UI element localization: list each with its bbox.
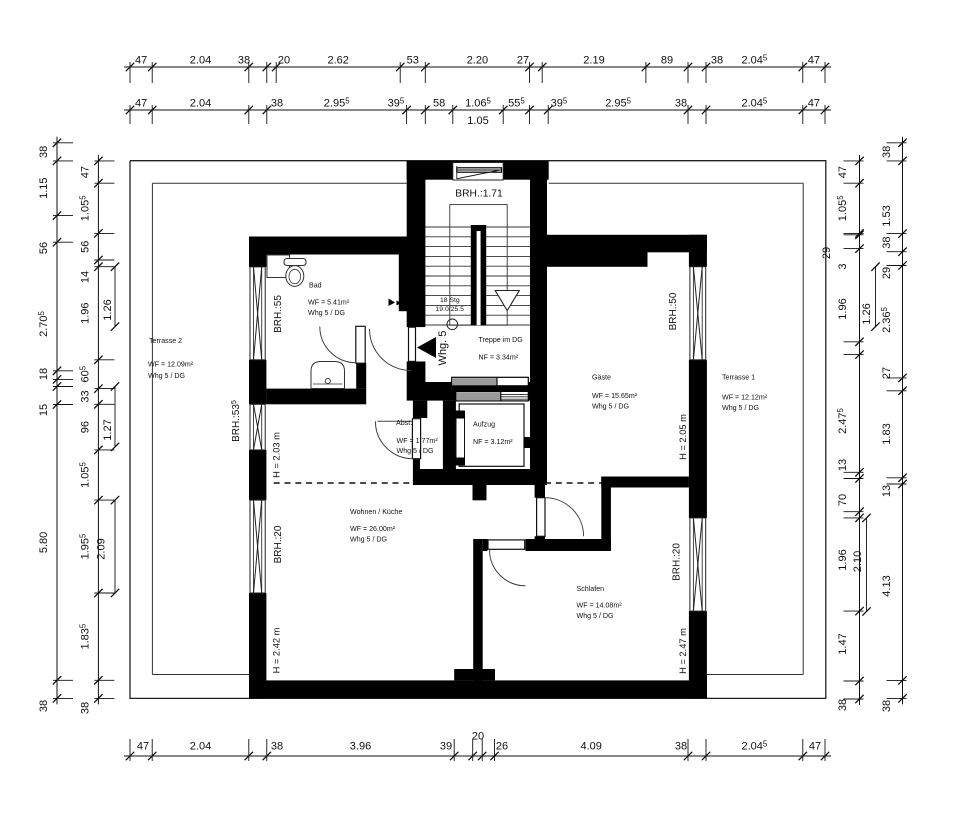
svg-text:38: 38 [711,55,723,67]
svg-text:2.62: 2.62 [327,55,348,67]
svg-text:47: 47 [809,741,821,753]
svg-text:14: 14 [80,271,92,283]
svg-text:BRH.:20: BRH.:20 [273,525,284,563]
svg-text:1.47: 1.47 [837,633,849,654]
svg-text:2.19: 2.19 [583,55,604,67]
svg-text:13: 13 [881,485,893,497]
svg-text:38: 38 [881,700,893,712]
svg-text:5.80: 5.80 [38,532,50,553]
svg-text:2.09: 2.09 [96,538,108,559]
svg-text:33: 33 [80,390,92,402]
svg-text:47: 47 [808,55,820,67]
svg-text:2.04: 2.04 [190,55,211,67]
svg-text:1.96: 1.96 [80,302,92,323]
svg-text:18 Stg: 18 Stg [440,297,460,304]
svg-text:47: 47 [135,55,147,67]
svg-text:38: 38 [675,741,687,753]
svg-text:2.20: 2.20 [467,55,488,67]
svg-text:Whg 5 / DG: Whg 5 / DG [592,403,629,411]
svg-text:38: 38 [675,98,687,110]
svg-text:38: 38 [80,702,92,714]
svg-text:47: 47 [837,166,849,178]
svg-text:1.26: 1.26 [861,303,873,324]
svg-text:38: 38 [271,741,283,753]
svg-text:Whg 5 / DG: Whg 5 / DG [350,536,387,544]
svg-text:2.04: 2.04 [190,98,211,110]
svg-text:58: 58 [433,98,445,110]
svg-text:38: 38 [38,146,50,158]
svg-text:1.53: 1.53 [881,205,893,226]
svg-text:89: 89 [661,55,673,67]
svg-text:H = 2.03 m: H = 2.03 m [272,432,282,478]
svg-text:Terrasse 2: Terrasse 2 [149,337,182,345]
svg-text:53: 53 [407,55,419,67]
svg-text:BRH.:20: BRH.:20 [672,543,683,581]
svg-text:1.05: 1.05 [467,115,488,127]
svg-text:18: 18 [38,368,50,380]
svg-text:29: 29 [881,267,893,279]
svg-text:NF = 3.12m²: NF = 3.12m² [473,438,513,446]
svg-text:3.96: 3.96 [350,741,371,753]
svg-text:56: 56 [38,242,50,254]
svg-text:2.04: 2.04 [190,741,211,753]
svg-text:47: 47 [135,98,147,110]
svg-text:47: 47 [80,166,92,178]
svg-text:Abst.: Abst. [396,419,412,427]
svg-text:WF = 12.12m²: WF = 12.12m² [722,394,768,402]
svg-text:15: 15 [38,404,50,416]
svg-text:1.96: 1.96 [837,549,849,570]
svg-text:WF = 26.00m²: WF = 26.00m² [350,525,396,533]
svg-text:38: 38 [38,700,50,712]
svg-text:1.27: 1.27 [102,419,114,440]
svg-text:BRH.:50: BRH.:50 [668,292,679,330]
svg-text:WF = 1.77m²: WF = 1.77m² [397,437,439,445]
svg-text:H = 2.47 m: H = 2.47 m [678,628,688,674]
svg-text:Whg 5 / DG: Whg 5 / DG [148,372,185,380]
svg-text:Bad: Bad [309,282,322,290]
svg-text:20: 20 [472,731,484,743]
svg-text:29: 29 [821,247,833,259]
svg-text:13: 13 [837,459,849,471]
svg-text:1.15: 1.15 [38,177,50,198]
svg-text:WF = 12.09m²: WF = 12.09m² [148,361,194,369]
svg-text:Whg. 5: Whg. 5 [437,331,449,366]
svg-text:Aufzug: Aufzug [473,421,495,429]
svg-text:2.10: 2.10 [852,551,864,572]
svg-text:H = 2.05 m: H = 2.05 m [678,414,688,460]
svg-text:4.09: 4.09 [580,741,601,753]
svg-text:3: 3 [837,263,849,269]
svg-text:Gäste: Gäste [592,374,611,382]
svg-text:47: 47 [808,98,820,110]
svg-text:BRH.:55: BRH.:55 [273,295,284,333]
svg-text:38: 38 [881,146,893,158]
svg-text:BRH.:1.71: BRH.:1.71 [455,189,503,200]
svg-text:Treppe im DG: Treppe im DG [479,336,523,344]
svg-text:38: 38 [881,236,893,248]
svg-text:Whg 5 / DG: Whg 5 / DG [308,309,345,317]
svg-text:20: 20 [278,55,290,67]
svg-text:38: 38 [238,55,250,67]
svg-text:27: 27 [517,55,529,67]
svg-text:Terrasse 1: Terrasse 1 [722,374,755,382]
svg-text:26: 26 [496,741,508,753]
svg-text:56: 56 [80,241,92,253]
svg-text:BRH.:535: BRH.:535 [229,400,242,442]
svg-text:Schlafen: Schlafen [577,585,605,593]
svg-text:1.83: 1.83 [881,423,893,444]
svg-text:WF = 14.08m²: WF = 14.08m² [577,602,623,610]
svg-text:96: 96 [80,421,92,433]
svg-text:1.96: 1.96 [837,298,849,319]
svg-text:27: 27 [881,367,893,379]
svg-text:Whg 5 / DG: Whg 5 / DG [722,404,759,412]
svg-text:H = 2.42 m: H = 2.42 m [272,627,282,673]
svg-text:70: 70 [837,494,849,506]
svg-text:4.13: 4.13 [881,575,893,596]
svg-text:1.26: 1.26 [102,299,114,320]
svg-text:Whg 5 / DG: Whg 5 / DG [577,612,614,620]
svg-text:47: 47 [137,741,149,753]
svg-text:38: 38 [271,98,283,110]
svg-text:WF = 5.41m²: WF = 5.41m² [308,299,350,307]
svg-text:39: 39 [440,741,452,753]
svg-text:19.0/25.5: 19.0/25.5 [436,306,465,313]
svg-text:38: 38 [837,699,849,711]
svg-text:NF = 3.34m²: NF = 3.34m² [479,354,519,362]
svg-text:Whg 5 / DG: Whg 5 / DG [397,447,434,455]
svg-text:WF = 15.65m²: WF = 15.65m² [592,392,638,400]
svg-text:Wohnen / Küche: Wohnen / Küche [350,508,402,516]
